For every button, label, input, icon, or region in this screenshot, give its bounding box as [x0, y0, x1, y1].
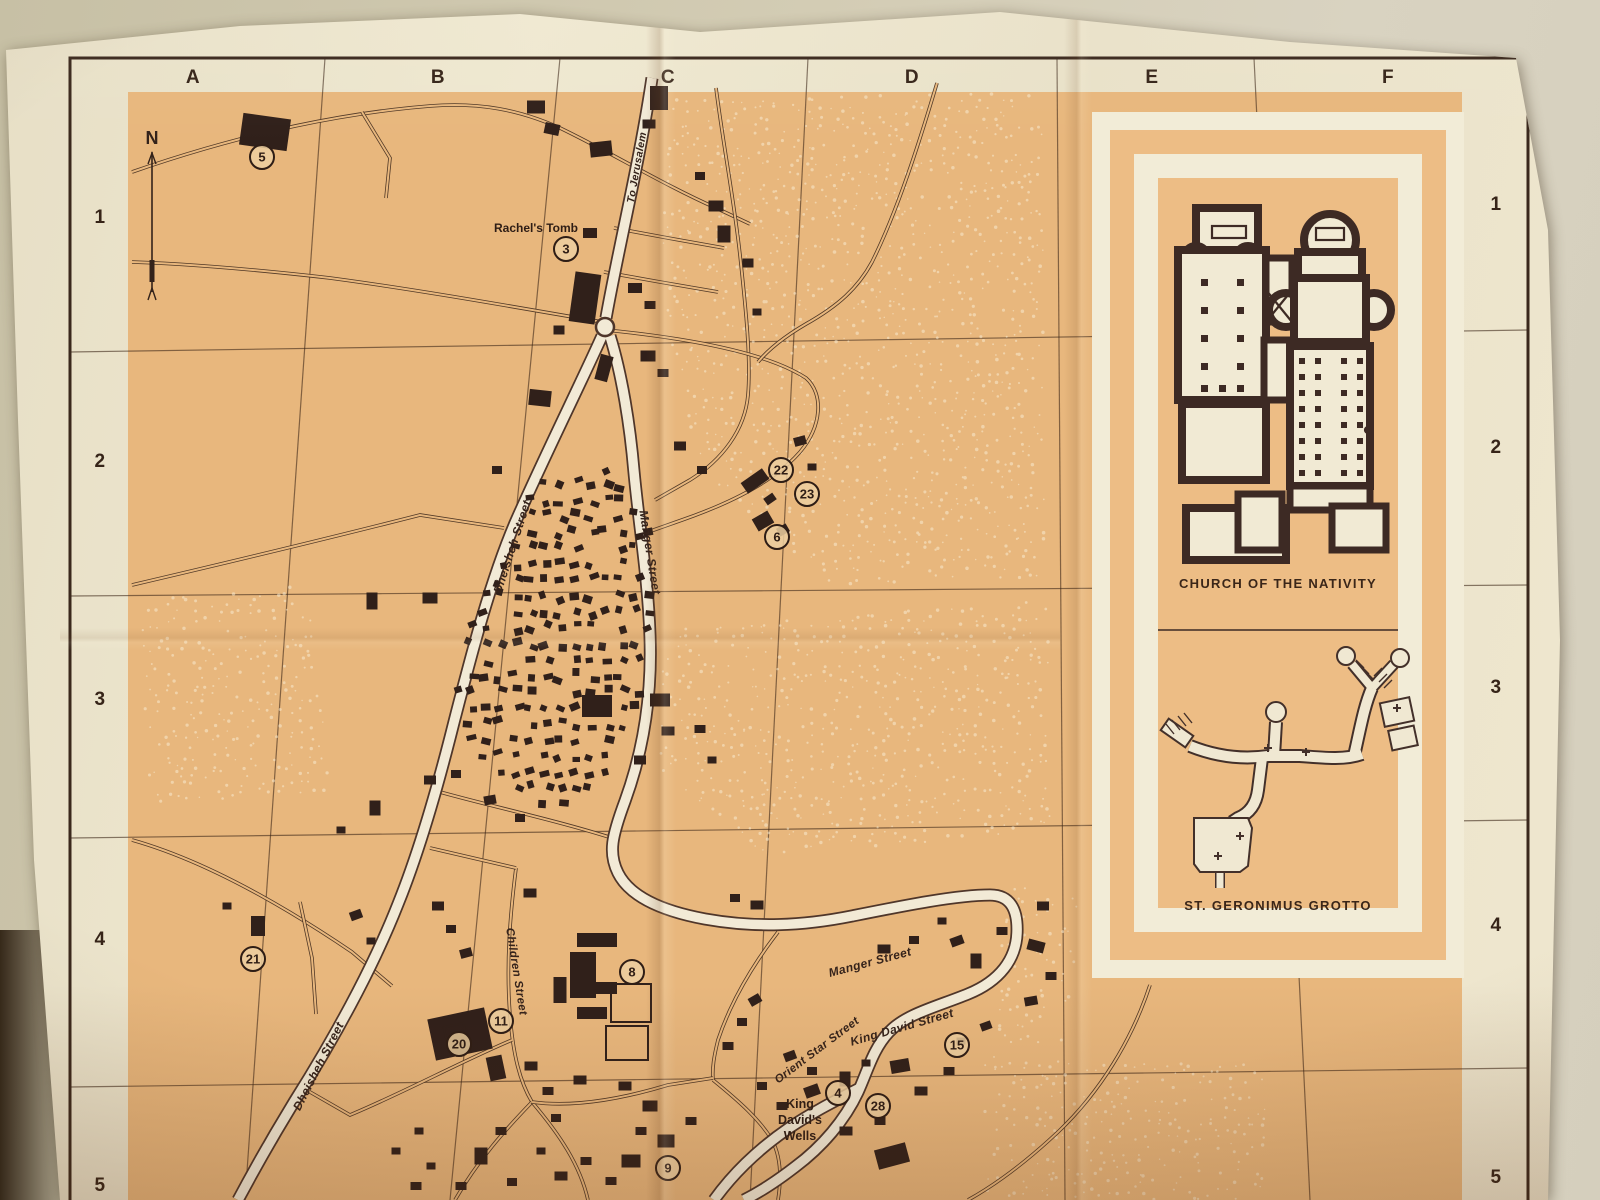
- building-footprint: [515, 814, 525, 822]
- grid-row-label-right-4: 4: [1490, 915, 1501, 937]
- building-footprint: [527, 101, 545, 114]
- building-footprint: [641, 351, 656, 362]
- building-footprint: [840, 1127, 853, 1136]
- grid-col-label-C: C: [661, 67, 675, 89]
- grid-row-label-left-1: 1: [94, 207, 105, 229]
- north-arrow-label: N: [146, 128, 159, 148]
- building-footprint: [551, 1114, 561, 1122]
- grid-col-label-E: E: [1145, 67, 1158, 89]
- building-footprint: [251, 916, 265, 936]
- building-footprint: [577, 933, 617, 947]
- grid-col-label-B: B: [431, 67, 445, 89]
- place-label: David's: [778, 1113, 822, 1127]
- svg-text:3: 3: [562, 242, 569, 257]
- svg-text:6: 6: [773, 530, 780, 545]
- building-footprint: [971, 954, 982, 969]
- building-footprint: [570, 952, 596, 998]
- building-footprint: [451, 770, 461, 778]
- building-footprint: [496, 1127, 507, 1135]
- grid-col-label-A: A: [186, 67, 200, 89]
- building-footprint: [695, 725, 706, 733]
- place-label: Wells: [784, 1129, 816, 1143]
- poi-marker-22: 22: [769, 458, 793, 482]
- building-footprint: [938, 918, 947, 925]
- building-footprint: [807, 1067, 817, 1075]
- poi-marker-4: 4: [826, 1081, 850, 1105]
- svg-text:8: 8: [628, 965, 635, 980]
- grid-row-label-left-4: 4: [94, 929, 105, 951]
- building-footprint: [634, 756, 646, 765]
- building-footprint: [337, 827, 346, 834]
- svg-text:23: 23: [800, 487, 814, 502]
- building-footprint: [718, 226, 731, 243]
- grid-row-label-left-2: 2: [94, 451, 105, 473]
- building-footprint: [697, 466, 707, 474]
- map-sheet-wrap: NTo JerusalemDheisheh StreetManger Stree…: [0, 0, 1600, 1200]
- building-footprint: [492, 466, 502, 474]
- grid-row-label-right-2: 2: [1490, 437, 1501, 459]
- poi-marker-20: 20: [447, 1032, 471, 1056]
- building-footprint: [636, 1127, 647, 1135]
- inset-panel: [1092, 112, 1464, 978]
- building-footprint: [507, 1178, 517, 1186]
- svg-text:5: 5: [258, 150, 265, 165]
- grid-col-label-D: D: [905, 67, 919, 89]
- bethlehem-map: NTo JerusalemDheisheh StreetManger Stree…: [0, 0, 1600, 1200]
- building-footprint: [944, 1067, 955, 1075]
- building-footprint: [432, 902, 444, 911]
- building-footprint: [370, 801, 381, 816]
- grid-row-label-right-1: 1: [1490, 194, 1501, 216]
- building-footprint: [411, 1182, 422, 1190]
- building-footprint: [628, 283, 642, 293]
- building-footprint: [709, 201, 724, 212]
- svg-text:21: 21: [246, 952, 260, 967]
- building-footprint: [392, 1148, 401, 1155]
- building-footprint: [424, 776, 436, 785]
- building-footprint: [658, 1135, 675, 1148]
- building-footprint: [577, 1007, 607, 1019]
- poi-marker-3: 3: [554, 237, 578, 261]
- building-footprint: [555, 1172, 568, 1181]
- building-footprint: [643, 1101, 658, 1112]
- building-footprint: [686, 1117, 697, 1125]
- building-footprint: [751, 901, 764, 910]
- map-sheet: NTo JerusalemDheisheh StreetManger Stree…: [0, 0, 1600, 1200]
- building-footprint: [537, 1148, 546, 1155]
- photo-backdrop: NTo JerusalemDheisheh StreetManger Stree…: [0, 0, 1600, 1200]
- building-footprint: [367, 593, 378, 610]
- building-footprint: [730, 894, 740, 902]
- building-footprint: [554, 326, 565, 335]
- poi-marker-11: 11: [489, 1009, 513, 1033]
- building-footprint: [415, 1128, 424, 1135]
- building-footprint: [997, 927, 1008, 935]
- building-footprint: [524, 889, 537, 898]
- grid-row-label-right-5: 5: [1490, 1167, 1501, 1189]
- svg-text:22: 22: [774, 463, 788, 478]
- svg-text:15: 15: [950, 1038, 964, 1053]
- building-footprint: [695, 172, 705, 180]
- poi-marker-8: 8: [620, 960, 644, 984]
- building-footprint: [662, 727, 675, 736]
- building-footprint: [582, 695, 612, 717]
- building-footprint: [622, 1155, 641, 1168]
- grid-col-label-F: F: [1382, 67, 1394, 89]
- building-footprint: [554, 977, 567, 1003]
- building-footprint: [456, 1182, 467, 1190]
- building-footprint: [743, 259, 754, 268]
- building-footprint: [808, 464, 817, 471]
- building-footprint: [367, 938, 376, 945]
- building-footprint: [223, 903, 232, 910]
- building-footprint: [650, 694, 670, 707]
- building-footprint: [423, 593, 438, 604]
- grid-row-label-right-3: 3: [1490, 677, 1501, 699]
- building-footprint: [645, 301, 656, 309]
- building-footprint: [1037, 902, 1049, 911]
- grid-row-label-left-5: 5: [94, 1175, 105, 1197]
- grid-row-label-left-3: 3: [94, 689, 105, 711]
- place-label: Rachel's Tomb: [494, 221, 578, 235]
- building-footprint: [589, 140, 612, 157]
- place-label: King: [786, 1097, 814, 1111]
- building-footprint: [723, 1042, 734, 1050]
- building-footprint: [915, 1087, 928, 1096]
- inset-title-church: CHURCH OF THE NATIVITY: [1158, 576, 1398, 591]
- building-footprint: [581, 1157, 592, 1165]
- poi-marker-23: 23: [795, 482, 819, 506]
- building-footprint: [528, 389, 552, 407]
- svg-text:9: 9: [664, 1161, 671, 1176]
- building-footprint: [753, 309, 762, 316]
- poi-marker-21: 21: [241, 947, 265, 971]
- poi-marker-6: 6: [765, 525, 789, 549]
- building-footprint: [574, 1076, 587, 1085]
- building-footprint: [862, 1060, 871, 1067]
- building-footprint: [446, 925, 456, 933]
- building-footprint: [757, 1082, 767, 1090]
- svg-text:28: 28: [871, 1099, 885, 1114]
- building-footprint: [650, 86, 668, 110]
- building-footprint: [708, 757, 717, 764]
- roundabout: [596, 318, 614, 336]
- building-footprint: [737, 1018, 747, 1026]
- svg-text:20: 20: [452, 1037, 466, 1052]
- building-footprint: [643, 120, 656, 129]
- building-footprint: [674, 442, 686, 451]
- poi-marker-15: 15: [945, 1033, 969, 1057]
- building-footprint: [543, 1087, 554, 1095]
- poi-marker-9: 9: [656, 1156, 680, 1180]
- svg-text:4: 4: [834, 1086, 842, 1101]
- building-footprint: [427, 1163, 436, 1170]
- poi-marker-28: 28: [866, 1094, 890, 1118]
- building-footprint: [619, 1082, 632, 1091]
- building-footprint: [606, 1177, 617, 1185]
- inset-title-grotto: ST. GERONIMUS GROTTO: [1158, 898, 1398, 913]
- building-footprint: [475, 1148, 488, 1165]
- building-footprint: [525, 1062, 538, 1071]
- building-footprint: [909, 936, 919, 944]
- building-footprint: [658, 369, 669, 377]
- church-of-nativity-floorplan: [1178, 208, 1391, 560]
- building-footprint: [1046, 972, 1057, 980]
- poi-marker-5: 5: [250, 145, 274, 169]
- svg-text:11: 11: [494, 1014, 508, 1029]
- building-footprint: [583, 228, 597, 238]
